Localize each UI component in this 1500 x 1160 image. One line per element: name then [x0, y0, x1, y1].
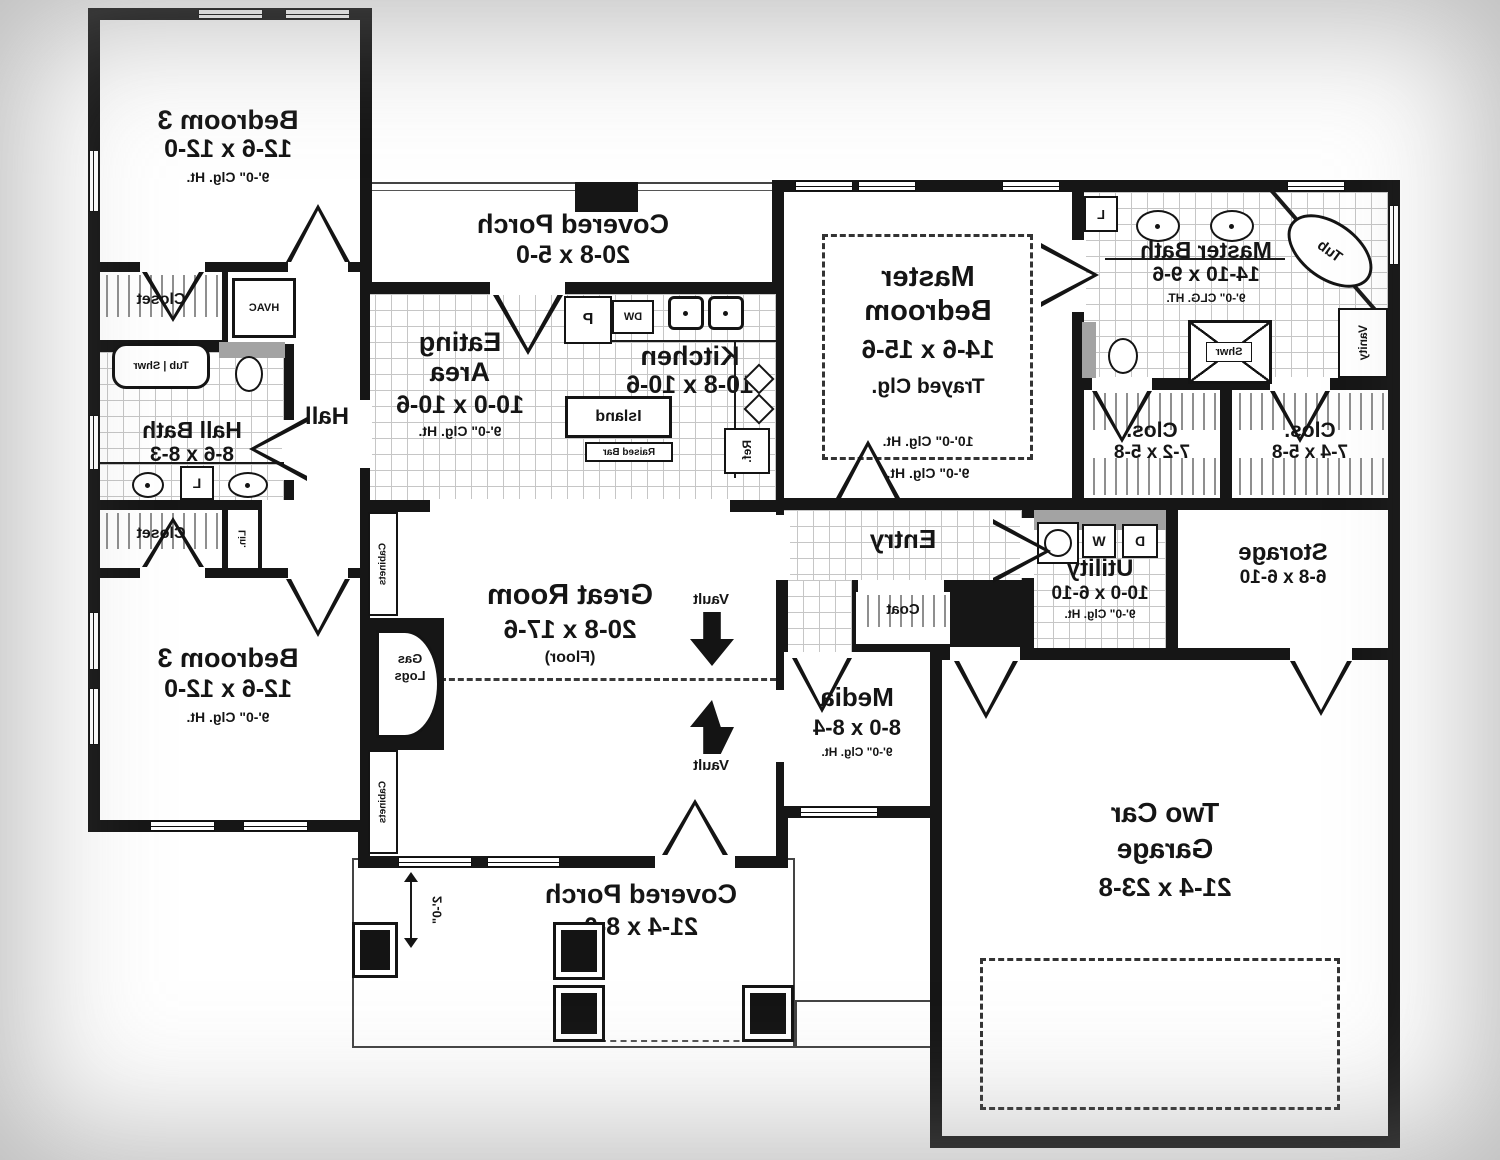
refrigerator: Ref. [724, 428, 770, 474]
master-bed-ceiling-out: 9'-0" Clg. Ht. [784, 466, 1072, 481]
tub-shower-unit: Tub | Shwr [112, 343, 210, 389]
clos1-name: Clos. [1084, 420, 1220, 442]
dimension-line [410, 874, 412, 946]
eating-name-2: Area [335, 358, 585, 386]
master-bed-ceiling-in: 10'-0" Clg. Ht. [784, 434, 1072, 449]
eating-dims: 10-0 x 10-6 [335, 392, 585, 418]
walkway-outline [795, 1000, 940, 1048]
bedroom-br-ceiling: 9'-0" Clg. Ht. [98, 710, 358, 725]
window [398, 857, 472, 867]
bedroom-br-dims: 12-6 x 12-0 [98, 676, 358, 702]
gas-logs-label-1: Gas [378, 652, 442, 666]
washer: W [1082, 524, 1116, 558]
master-bath-ceiling: 9'-0" CLG. HT. [1054, 292, 1358, 305]
porch-top-dims: 20-8 x 5-0 [370, 242, 776, 268]
door-opening [288, 567, 348, 579]
porch-column [553, 922, 605, 980]
bedroom-br-name: Bedroom 3 [98, 644, 358, 672]
entry-corridor [788, 580, 852, 656]
toilet [235, 356, 263, 392]
window [487, 857, 560, 867]
vanity: Vanity [1338, 308, 1388, 378]
window [150, 821, 215, 831]
door-opening [1270, 377, 1330, 391]
media-name: Media [784, 684, 930, 711]
garage-dims: 21-4 x 23-8 [942, 874, 1388, 901]
door-opening [140, 261, 205, 273]
great-room-dims: 20-8 x 17-6 [430, 616, 710, 643]
kitchen-dims: 10-8 x 10-6 [565, 372, 815, 398]
window [198, 9, 263, 19]
porch-edge-dashes [600, 1040, 760, 1042]
floor-plan-sheet: Bedroom 3 12-6 x 12-0 9'-0" Clg. Ht. Clo… [0, 0, 1500, 1160]
sink [1136, 210, 1180, 242]
door-opening [288, 261, 348, 273]
window [795, 181, 853, 191]
hvac-unit: HVAC [232, 278, 296, 338]
pantry: P [564, 296, 612, 344]
kitchen-name: Kitchen [565, 342, 815, 370]
bedroom-tr-name: Bedroom 3 [98, 106, 358, 134]
window [858, 181, 916, 191]
linen-cabinet: L [180, 466, 214, 500]
door-opening [1092, 377, 1152, 391]
utility-name: Utility [1034, 556, 1166, 581]
storage-dims: 6-8 x 6-10 [1178, 568, 1388, 588]
bedroom-tr-ceiling: 9'-0" Clg. Ht. [98, 170, 358, 185]
master-bed-tray-note: Trayed Clg. [784, 376, 1072, 398]
door-opening [140, 567, 205, 579]
storage-name: Storage [1178, 540, 1388, 565]
clos1-dims: 7-2 x 5-8 [1084, 443, 1220, 463]
bedroom-tr-dims: 12-6 x 12-0 [98, 136, 358, 162]
door-opening [1020, 518, 1034, 578]
toilet-partition [1082, 322, 1096, 378]
door-opening [490, 281, 565, 295]
door-opening [1290, 647, 1352, 661]
laundry-sink-basin [1044, 529, 1072, 557]
hall-bath-name: Hall Bath [100, 418, 284, 442]
window [1389, 205, 1399, 265]
vanity-counter-line [100, 462, 284, 464]
window [1002, 181, 1060, 191]
sink [1210, 210, 1254, 242]
master-bed-name-1: Master [784, 262, 1072, 292]
shower-label: Shwr [1206, 342, 1252, 362]
porch-column [742, 985, 794, 1042]
window [285, 9, 350, 19]
great-room-floor-note: (Floor) [430, 650, 710, 667]
porch-column [352, 922, 398, 978]
room-coat [856, 592, 950, 644]
cabinets: Cabinets [368, 512, 398, 616]
eating-ceiling: 9'-0" Clg. Ht. [335, 424, 585, 439]
linen-closet-label: Lin. [228, 512, 258, 566]
eating-name-1: Eating [335, 328, 585, 356]
wide-opening [430, 499, 730, 513]
garage-name-1: Two Car [942, 798, 1388, 827]
garage-name-2: Garage [942, 834, 1388, 863]
utility-ceiling: 9'-0" Clg. Ht. [1034, 608, 1166, 621]
master-bed-name-2: Bedroom [784, 296, 1072, 326]
toilet [1108, 338, 1138, 374]
door-opening [858, 580, 944, 594]
vanity-counter-line [1105, 258, 1285, 260]
porch-bottom-dims: 21-4 x 8-0 [506, 914, 776, 940]
porch-depth-dimension: 2'-0" [424, 880, 450, 940]
hall-vestibule [262, 500, 360, 568]
porch-bottom-name: Covered Porch [506, 880, 776, 908]
ceiling-break-line [440, 678, 776, 681]
clos2-dims: 7-4 x 5-8 [1232, 443, 1388, 463]
porch-top-name: Covered Porch [370, 210, 776, 238]
kitchen-sink [708, 296, 744, 330]
window [1287, 181, 1345, 191]
top-porch-beam-line [366, 190, 776, 191]
sink [228, 472, 268, 498]
dishwasher: DW [612, 300, 654, 334]
raised-bar: Raised Bar [585, 442, 673, 462]
door-opening [950, 647, 1020, 661]
kitchen-sink [668, 296, 704, 330]
utility-dims: 10-0 x 6-10 [1034, 584, 1166, 604]
window [800, 807, 878, 817]
entry-label: Entry [784, 526, 1022, 553]
window [89, 415, 99, 470]
cabinets: Cabinets [368, 750, 398, 854]
window [243, 821, 308, 831]
garage-door-outline [980, 958, 1340, 1110]
media-ceiling: 9'-0" Clg. Ht. [784, 746, 930, 759]
master-bed-dims: 14-6 x 15-6 [784, 336, 1072, 363]
vault-label: Vault [666, 592, 756, 608]
gas-logs-label-2: Logs [378, 669, 442, 683]
vault-label: Vault [666, 758, 756, 774]
front-door-opening [655, 855, 735, 869]
floor-plan-mirrored: Bedroom 3 12-6 x 12-0 9'-0" Clg. Ht. Clo… [0, 0, 1500, 1160]
coat-label: Coat [856, 602, 950, 618]
sink [132, 472, 164, 498]
dryer: D [1122, 524, 1158, 558]
linen-cabinet: L [1084, 196, 1118, 232]
kitchen-island: Island [565, 396, 672, 438]
porch-post [575, 182, 638, 212]
media-dims: 8-0 x 8-4 [784, 716, 930, 739]
porch-column [553, 985, 605, 1042]
